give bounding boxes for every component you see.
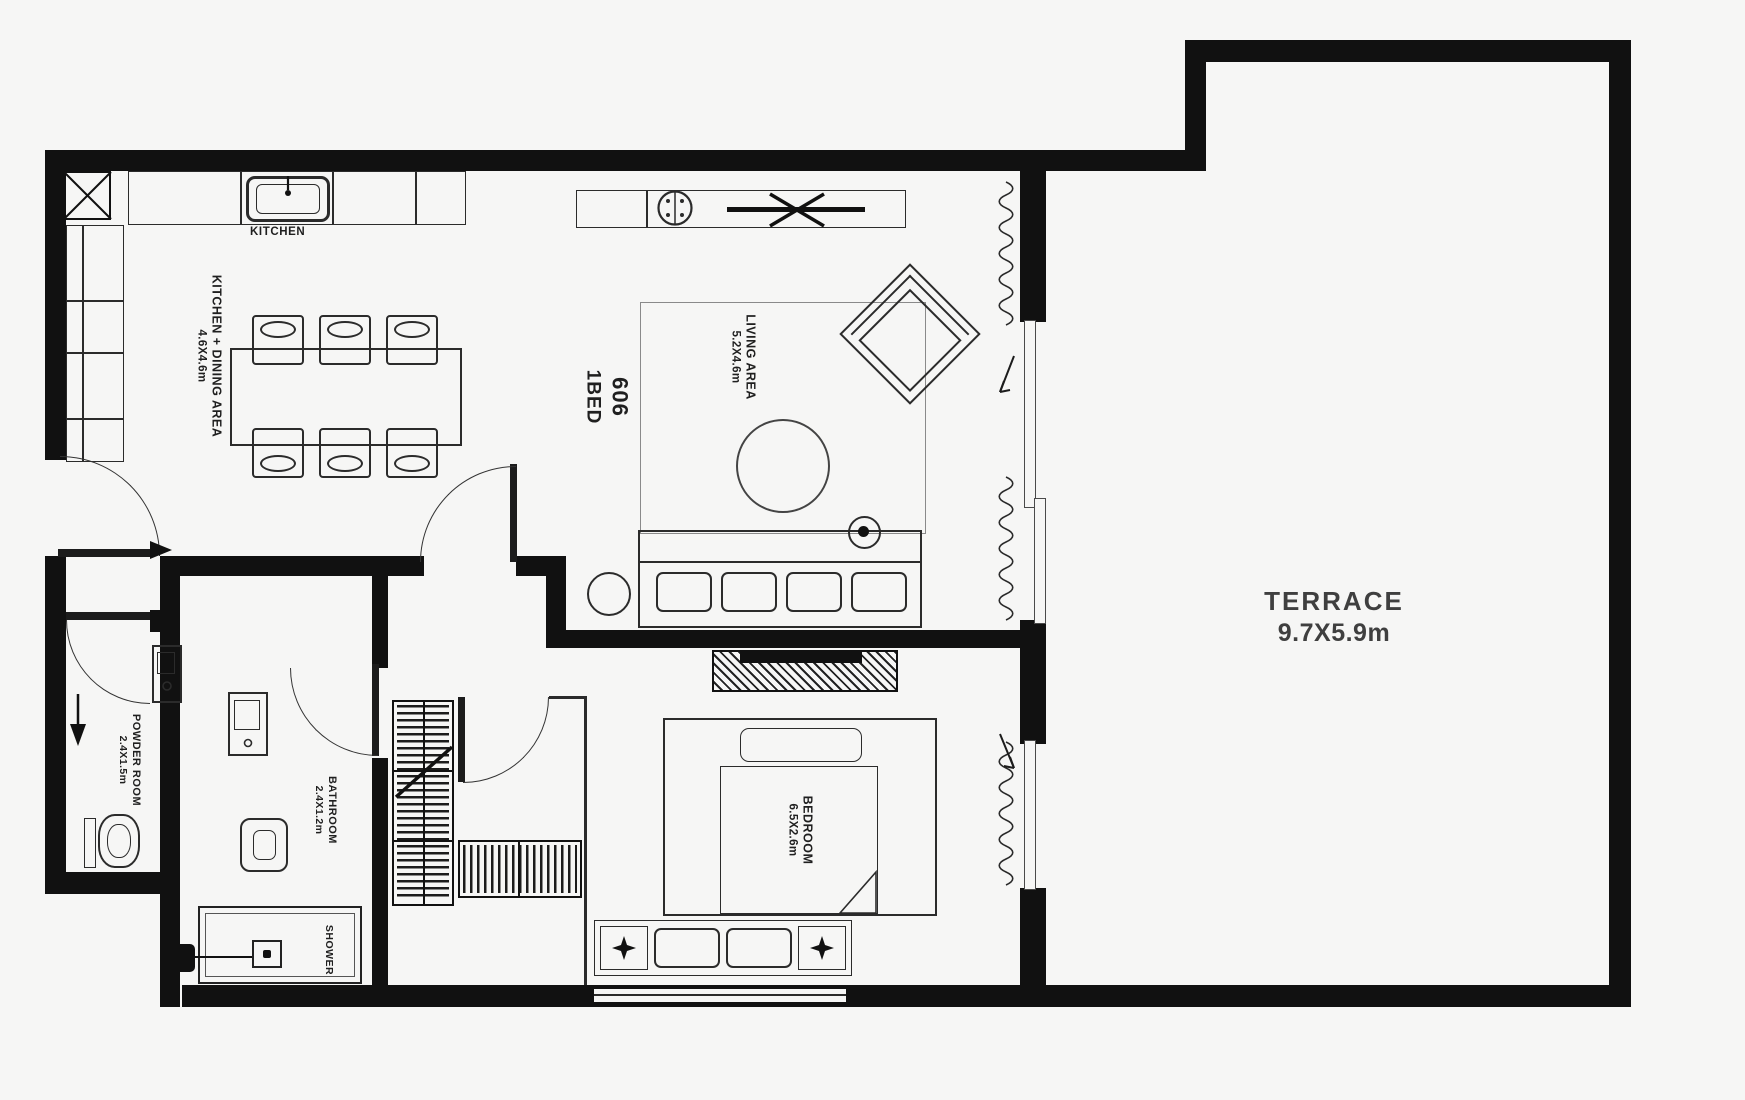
bedroom-window-glass-line (594, 994, 846, 996)
cabinet-divider (66, 418, 124, 420)
sofa-cushion (721, 572, 777, 612)
dining-chair (319, 428, 371, 478)
wall-powder-right (160, 556, 180, 872)
powder-toilet-tank (84, 818, 96, 868)
label-terrace: TERRACE 9.7X5.9m (1238, 586, 1430, 648)
wall-right-mid (1020, 620, 1046, 744)
wall-terrace-top (1185, 40, 1631, 62)
sofa-cushion (851, 572, 907, 612)
kitchen-label: KITCHEN (250, 226, 305, 238)
label-shower: SHOWER (321, 925, 335, 975)
bathroom-door-arc (290, 668, 378, 756)
round-table (736, 419, 830, 513)
dining-chair (252, 315, 304, 365)
bedroom-door-arc (463, 697, 549, 783)
wall-bath-right-lower (372, 758, 388, 985)
kitchen-sink-basin (256, 184, 320, 214)
powder-toilet-seat (107, 824, 131, 858)
cabinet-divider (66, 300, 124, 302)
shower-drain-dot (263, 950, 271, 958)
wardrobe-divider (423, 702, 425, 904)
wall-corridor-stub (549, 696, 587, 699)
sofa-cushion (656, 572, 712, 612)
tv-console (576, 190, 906, 228)
label-bedroom: BEDROOM 6.5X2.6m (784, 796, 815, 865)
wall-living-bedroom (546, 630, 1046, 648)
curtain-icon (999, 182, 1013, 885)
sliding-door-panel (1034, 498, 1046, 624)
floor-plan: KITCHEN (0, 0, 1745, 1100)
wall-left-upper (45, 150, 66, 460)
label-powder-room: POWDER ROOM 2.4X1.5m (115, 714, 143, 806)
label-bathroom: BATHROOM 2.4X1.2m (311, 776, 339, 844)
wardrobe-vertical (392, 700, 454, 906)
hall-door-arc (420, 466, 516, 562)
wall-right-upper (1020, 171, 1046, 322)
counter-divider (415, 171, 417, 225)
dining-chair (252, 428, 304, 478)
sliding-door-panel (1024, 740, 1036, 890)
side-table (587, 572, 631, 616)
powder-vanity-basin (157, 652, 175, 674)
label-unit-number: 606 1BED (580, 370, 633, 425)
entry-door-arc (60, 456, 160, 556)
shower-head (178, 944, 195, 972)
wall-bath-left (160, 872, 180, 1007)
sliding-door-panel (1024, 320, 1036, 508)
powder-arrow-icon (70, 694, 86, 746)
wall-bottom (182, 985, 1631, 1007)
label-living-area: LIVING AREA 5.2X4.6m (727, 314, 758, 400)
console-divider (646, 190, 648, 228)
entry-door-leaf (58, 549, 154, 557)
wardrobe-horizontal (458, 840, 582, 898)
dining-chair (386, 428, 438, 478)
service-shaft (64, 171, 111, 220)
wall-top (45, 150, 1205, 171)
wall-powder-top-a (45, 610, 66, 632)
wardrobe-divider (518, 842, 520, 896)
nightstand-right (798, 926, 846, 970)
wall-terrace-right (1609, 40, 1631, 1007)
sofa-cushion (786, 572, 842, 612)
kitchen-cabinets-left (66, 225, 124, 462)
sofa-back-line (640, 561, 920, 563)
bench-cushion (726, 928, 792, 968)
wardrobe-shelf (394, 840, 452, 842)
slide-direction-arrow-icon (1000, 356, 1014, 768)
nightstand-left (600, 926, 648, 970)
cabinet-inner-line (82, 225, 84, 462)
dining-chair (319, 315, 371, 365)
bath-vanity-basin (234, 700, 260, 730)
powder-door-arc (66, 620, 150, 704)
wall-bath-right-upper (372, 556, 388, 668)
wall-bedroom-left-thin (584, 697, 587, 985)
powder-door-leaf (66, 612, 150, 620)
bedroom-window (594, 987, 846, 1004)
label-kitchen-dining: KITCHEN + DINING AREA 4.6X4.6m (193, 275, 224, 437)
counter-divider (332, 171, 334, 225)
wall-right-lower (1020, 888, 1046, 987)
bath-toilet-seat (253, 830, 276, 860)
wall-left-lower (45, 556, 66, 894)
dining-chair (386, 315, 438, 365)
floor-lamp-bulb (858, 526, 869, 537)
counter-divider (240, 171, 242, 225)
bench-cushion (654, 928, 720, 968)
wardrobe-shelf (394, 770, 452, 772)
bedroom-tv (740, 652, 862, 663)
bed-pillow-band (740, 728, 862, 762)
cabinet-divider (66, 352, 124, 354)
